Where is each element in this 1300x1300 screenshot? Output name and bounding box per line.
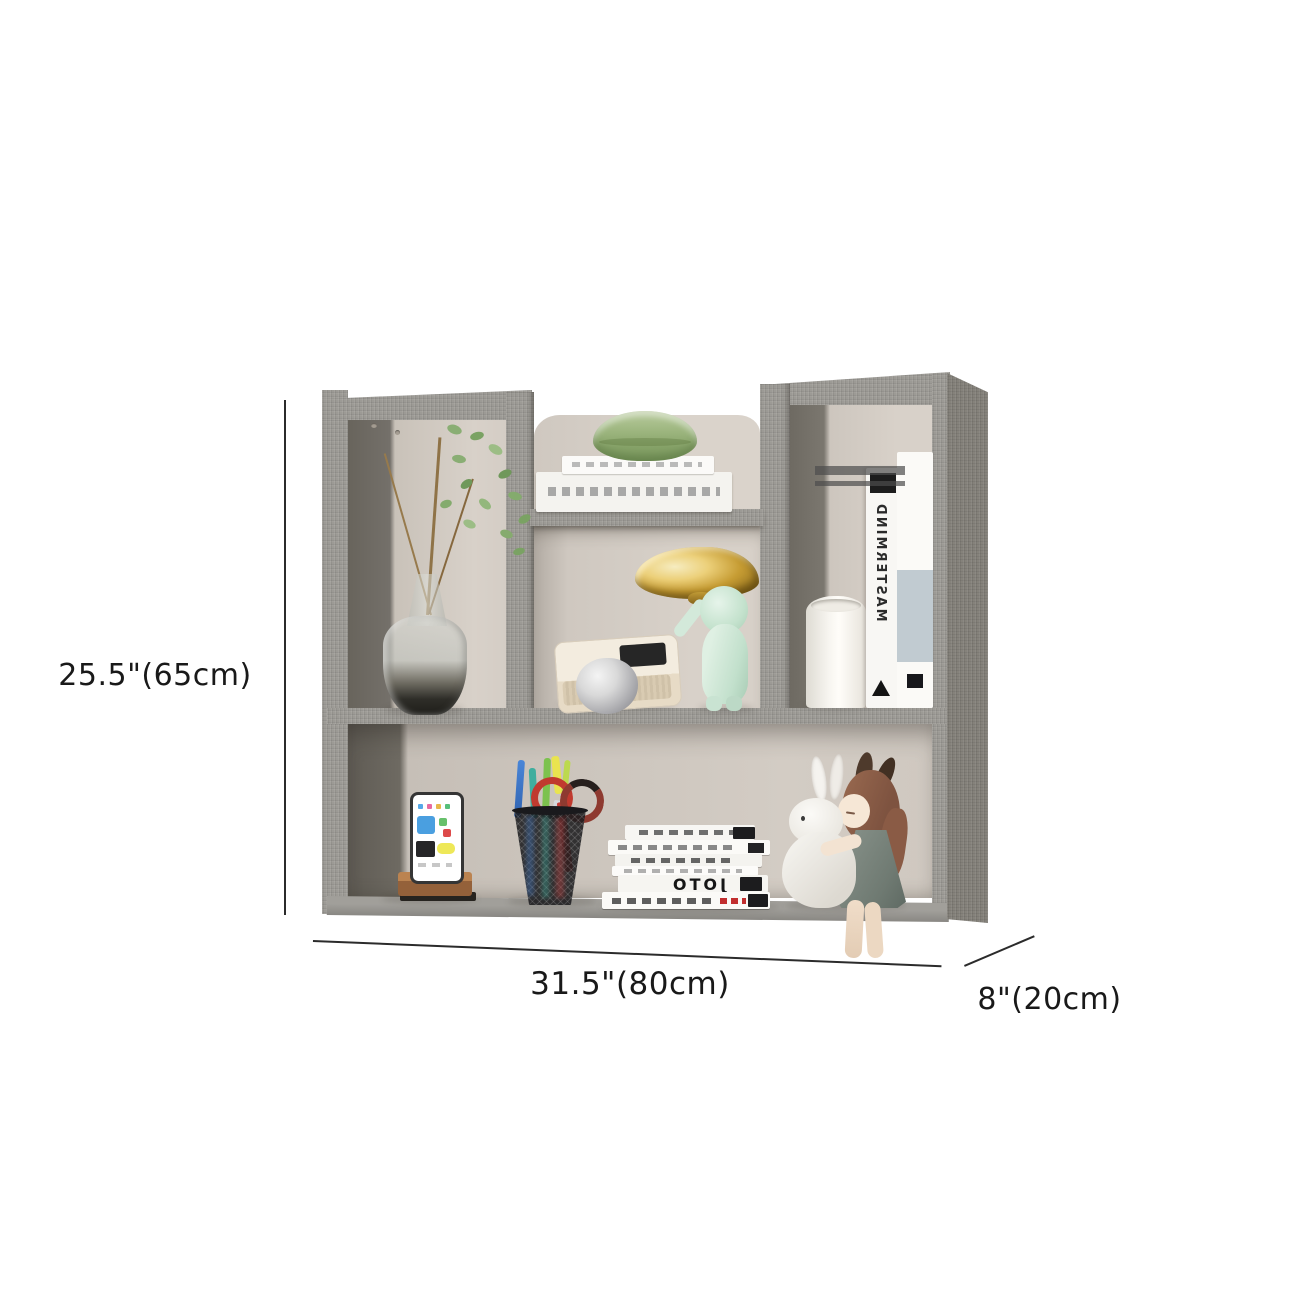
right-side-panel	[947, 373, 988, 923]
spine-dashes	[618, 845, 738, 850]
standing-book-second	[897, 452, 933, 708]
book-spine-text: MASTERMIND	[873, 502, 888, 622]
album-tile	[416, 841, 435, 857]
book-spine-dashes	[815, 466, 905, 486]
stacked-book	[608, 840, 770, 855]
cup-content-hint	[542, 816, 549, 898]
height-dimension-label: 25.5"(65cm)	[40, 658, 270, 693]
glass-vase-body	[383, 616, 467, 715]
flat-book-upper-spine-text	[572, 462, 702, 467]
height-dimension-line	[284, 400, 286, 915]
pillar-candle	[806, 596, 866, 708]
cup-content-hint	[556, 818, 564, 898]
girl-leg	[844, 900, 864, 959]
left-frame-board	[322, 390, 348, 914]
bunny-eye	[801, 816, 805, 821]
astronaut-leg	[726, 696, 742, 711]
spine-red-text	[720, 898, 746, 904]
app-icon	[436, 804, 441, 809]
banner-yellow	[437, 843, 455, 854]
astronaut-leg	[706, 696, 722, 711]
left-top-board	[322, 390, 532, 420]
stacked-book-red	[602, 892, 770, 909]
book-logo-square	[907, 674, 923, 688]
app-icon	[427, 804, 432, 809]
book-clasp	[740, 877, 762, 891]
wall-screw	[371, 423, 377, 428]
spine-dashes	[639, 830, 735, 835]
product-dimension-diagram: MASTERMIND	[0, 0, 1300, 1300]
book-clasp	[733, 827, 755, 839]
app-icon	[418, 804, 423, 809]
smartphone	[410, 792, 464, 884]
cup-rim	[512, 806, 588, 815]
app-tile-green	[439, 818, 447, 826]
app-dot-red	[443, 829, 451, 837]
depth-dimension-line	[964, 935, 1035, 967]
paper-ball	[576, 658, 638, 714]
stacked-book-joto: JOTO	[618, 875, 768, 893]
screen-text	[418, 863, 452, 867]
book-clasp	[748, 894, 768, 907]
spine-mark	[748, 843, 764, 853]
flat-book-lower-spine-text	[548, 487, 720, 496]
wall-screw	[395, 430, 400, 435]
spine-dashes	[631, 858, 731, 863]
book-spine-band	[897, 570, 933, 662]
right-frame-board	[932, 374, 948, 920]
app-icon	[445, 804, 450, 809]
book-logo-triangle	[872, 680, 890, 696]
green-jar-rim	[599, 438, 691, 446]
candle-top	[811, 599, 861, 612]
spine-dashes	[624, 869, 742, 873]
standing-book-mastermind: MASTERMIND	[866, 468, 900, 708]
depth-dimension-label: 8"(20cm)	[962, 982, 1137, 1017]
astronaut-body	[702, 624, 748, 704]
cup-content-hint	[526, 816, 534, 896]
app-tile-blue	[417, 816, 435, 834]
right-divider-board	[760, 384, 790, 710]
width-dimension-label: 31.5"(80cm)	[460, 966, 800, 1002]
spine-dashes	[612, 898, 716, 904]
